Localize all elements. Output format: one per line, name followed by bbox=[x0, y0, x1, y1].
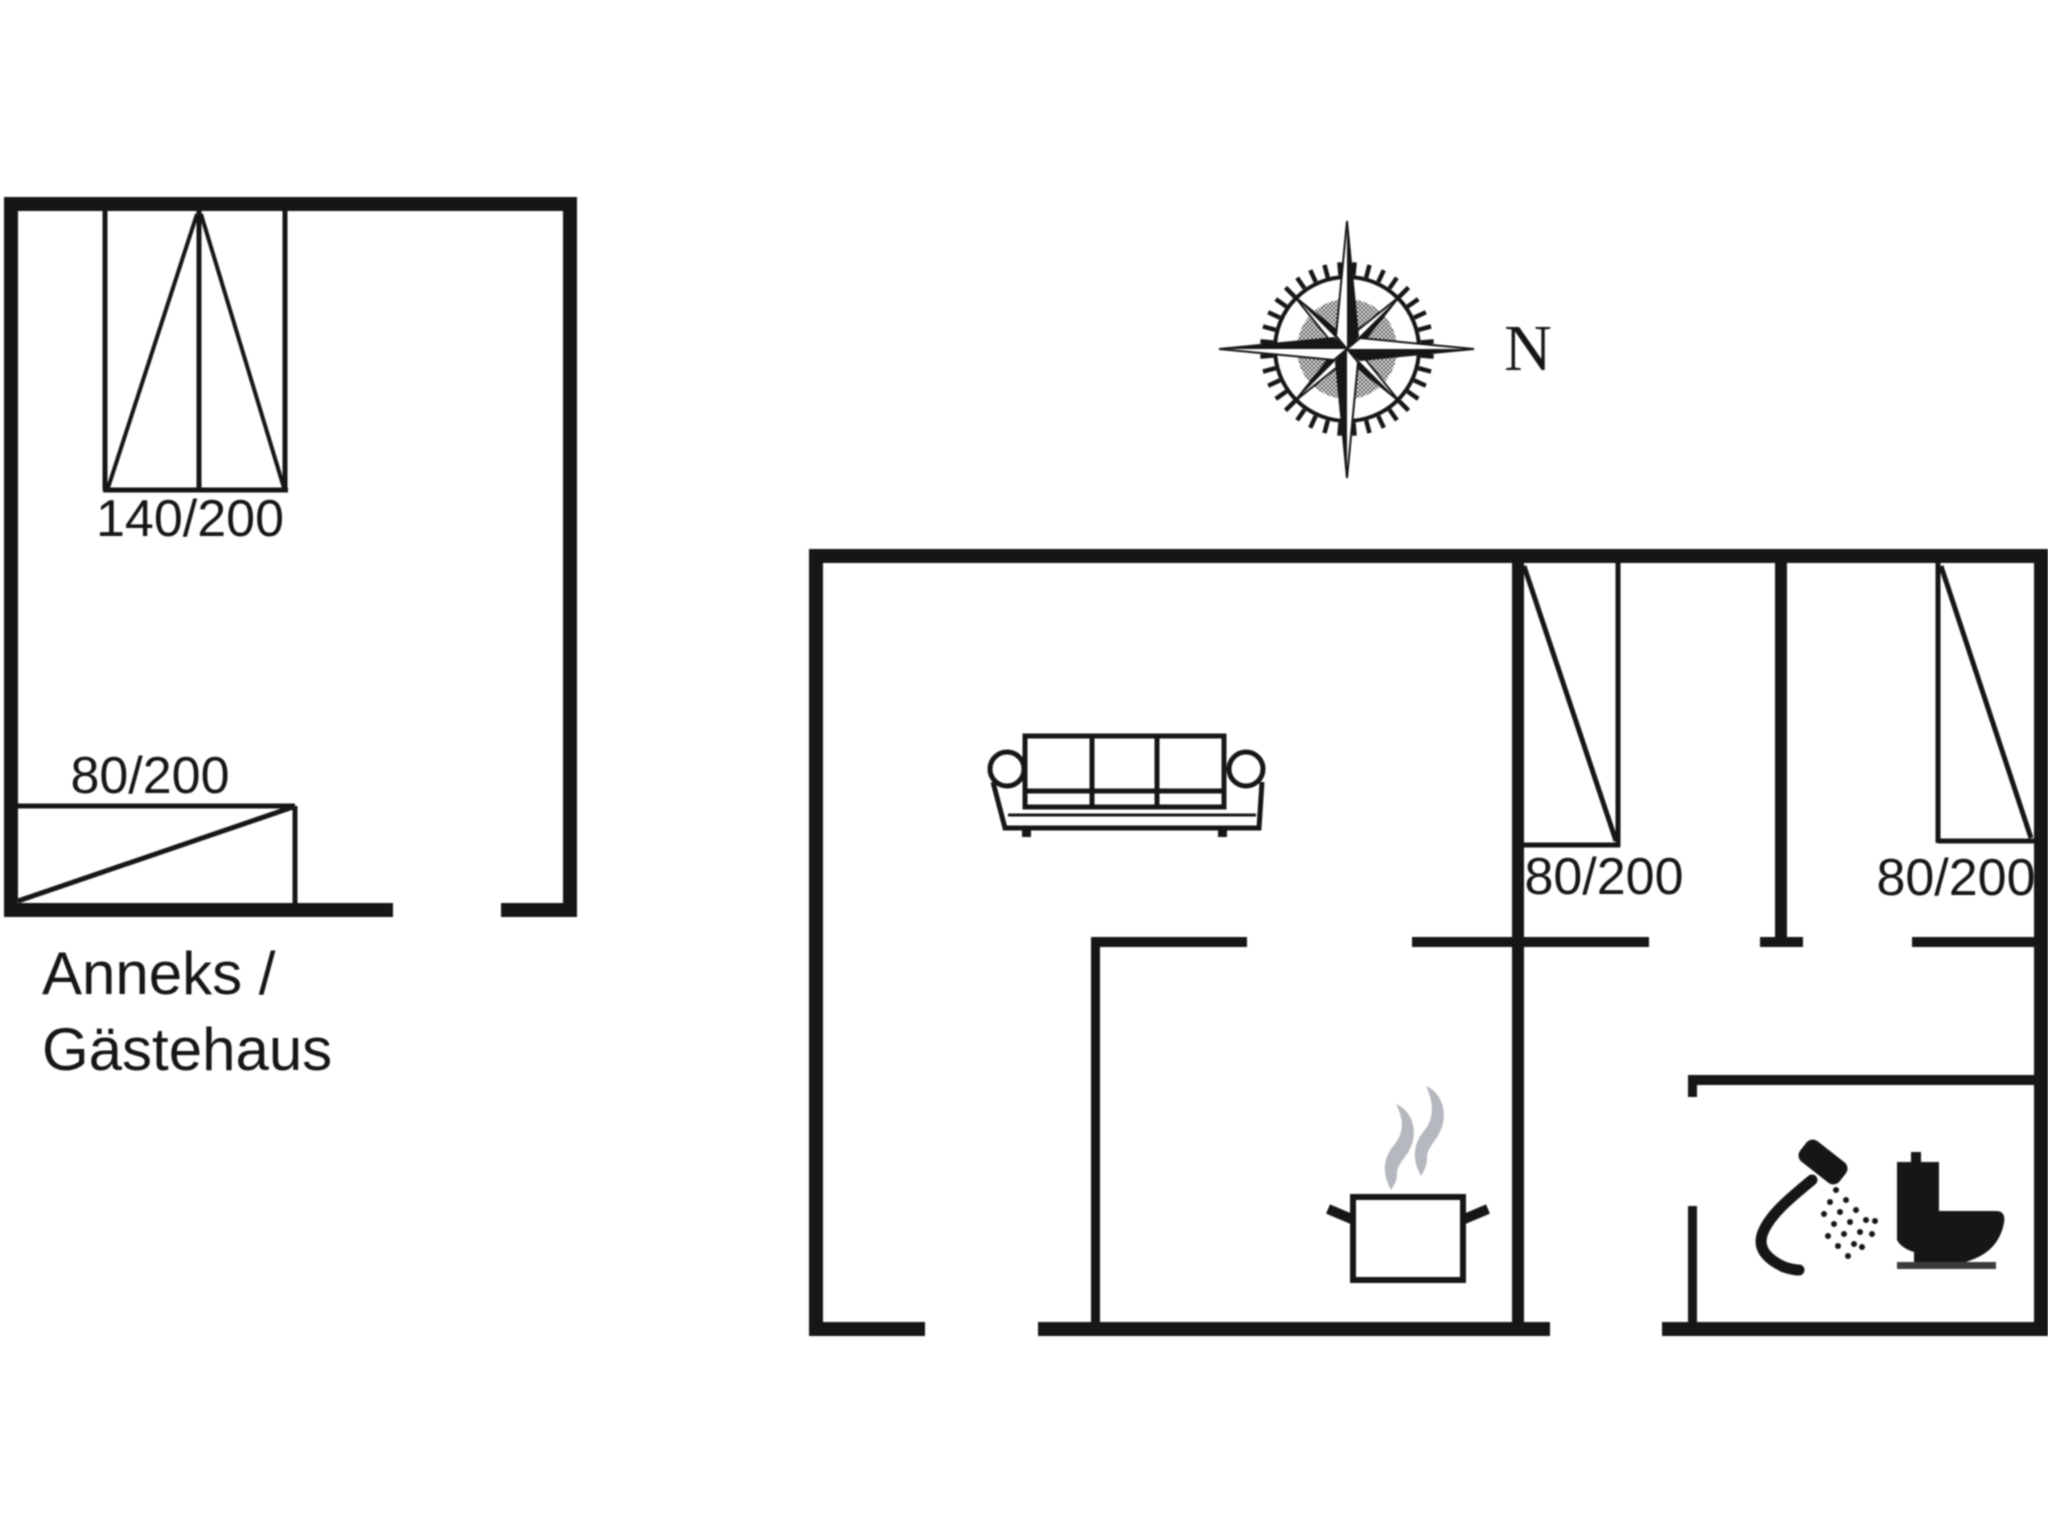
svg-text:140/200: 140/200 bbox=[96, 490, 284, 548]
svg-text:N: N bbox=[1504, 312, 1552, 385]
svg-text:80/200: 80/200 bbox=[1524, 848, 1683, 906]
svg-text:80/200: 80/200 bbox=[70, 747, 229, 805]
svg-text:Gästehaus: Gästehaus bbox=[42, 1016, 332, 1083]
svg-text:80/200: 80/200 bbox=[1876, 849, 2035, 907]
svg-text:Anneks /: Anneks / bbox=[42, 940, 276, 1007]
